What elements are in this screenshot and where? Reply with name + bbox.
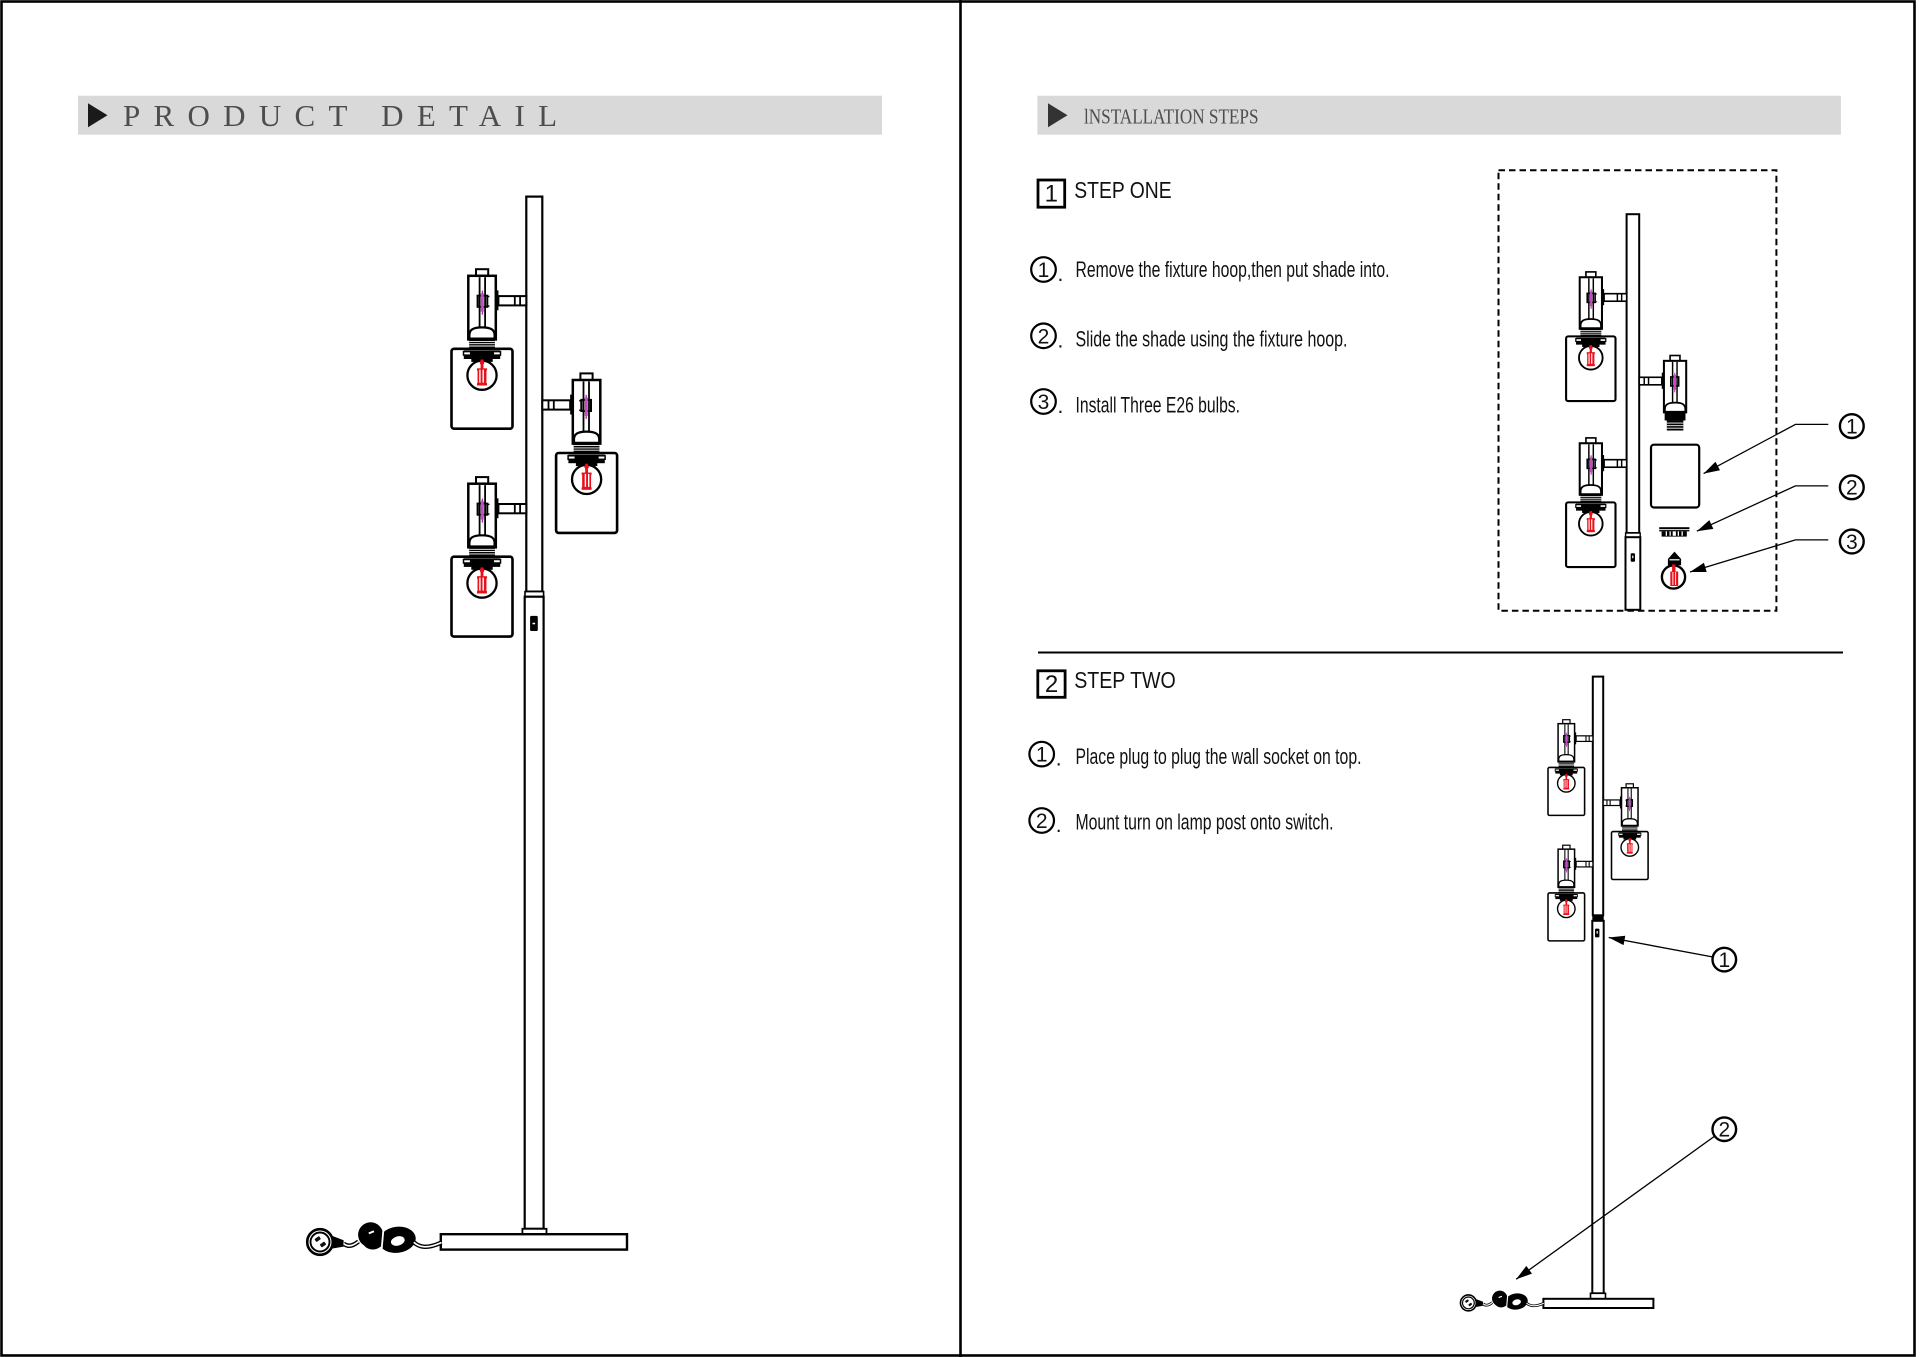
svg-text:.: . bbox=[1056, 814, 1062, 837]
svg-text:2: 2 bbox=[1846, 477, 1858, 500]
svg-text:1: 1 bbox=[1038, 259, 1050, 282]
svg-text:1: 1 bbox=[1846, 415, 1858, 438]
svg-text:Remove the fixture hoop,then p: Remove the fixture hoop,then put shade i… bbox=[1076, 257, 1390, 282]
svg-text:3: 3 bbox=[1038, 391, 1050, 414]
svg-text:STEP TWO: STEP TWO bbox=[1074, 667, 1176, 693]
svg-text:1: 1 bbox=[1045, 181, 1058, 208]
svg-text:.: . bbox=[1056, 748, 1062, 771]
svg-text:2: 2 bbox=[1718, 1119, 1730, 1142]
svg-text:STEP ONE: STEP ONE bbox=[1074, 177, 1171, 203]
svg-text:2: 2 bbox=[1038, 325, 1050, 348]
svg-text:lNSTALLATION STEPS: lNSTALLATION STEPS bbox=[1084, 104, 1259, 128]
svg-text:2: 2 bbox=[1036, 810, 1048, 833]
svg-text:PRODUCT DETAIL: PRODUCT DETAIL bbox=[123, 98, 557, 133]
svg-text:1: 1 bbox=[1718, 949, 1730, 972]
svg-text:3: 3 bbox=[1846, 531, 1858, 554]
svg-text:1: 1 bbox=[1036, 744, 1048, 767]
svg-text:Install Three E26 bulbs.: Install Three E26 bulbs. bbox=[1076, 393, 1241, 418]
svg-text:Mount turn on lamp post onto s: Mount turn on lamp post onto switch. bbox=[1076, 810, 1334, 835]
svg-text:.: . bbox=[1058, 263, 1064, 286]
svg-text:.: . bbox=[1058, 395, 1064, 418]
svg-text:2: 2 bbox=[1045, 671, 1058, 698]
svg-text:Place plug to plug the wall so: Place plug to plug the wall socket on to… bbox=[1076, 744, 1362, 769]
svg-text:Slide the shade using the fixt: Slide the shade using the fixture hoop. bbox=[1076, 326, 1348, 351]
svg-text:.: . bbox=[1058, 329, 1064, 352]
